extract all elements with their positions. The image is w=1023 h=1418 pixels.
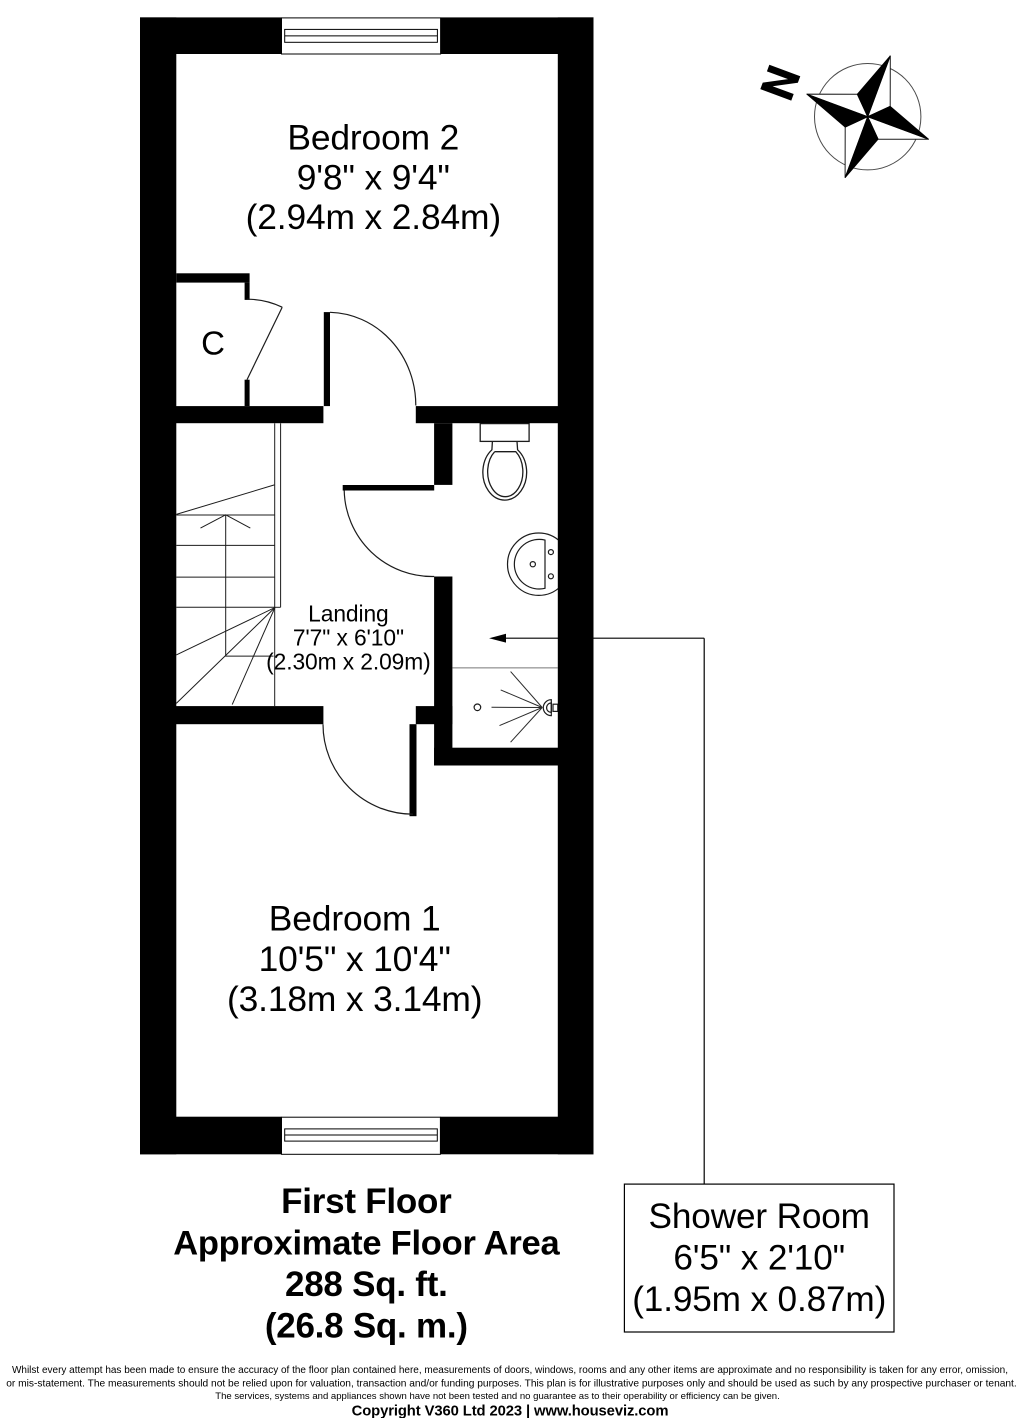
svg-text:C: C bbox=[201, 325, 225, 362]
svg-text:Bedroom 2: Bedroom 2 bbox=[287, 118, 459, 158]
svg-text:Copyright V360 Ltd 2023 | www.: Copyright V360 Ltd 2023 | www.houseviz.c… bbox=[352, 1403, 669, 1418]
svg-text:Whilst every attempt has been: Whilst every attempt has been made to en… bbox=[12, 1365, 1008, 1376]
svg-text:7'7" x 6'10": 7'7" x 6'10" bbox=[293, 625, 404, 651]
svg-text:(26.8 Sq. m.): (26.8 Sq. m.) bbox=[265, 1307, 468, 1346]
svg-text:Approximate Floor Area: Approximate Floor Area bbox=[173, 1225, 560, 1263]
svg-text:6'5" x 2'10": 6'5" x 2'10" bbox=[673, 1238, 845, 1277]
svg-text:9'8" x 9'4": 9'8" x 9'4" bbox=[297, 157, 450, 197]
svg-text:10'5" x 10'4": 10'5" x 10'4" bbox=[259, 939, 451, 979]
svg-text:Shower Room: Shower Room bbox=[649, 1197, 870, 1236]
svg-text:(2.30m x 2.09m): (2.30m x 2.09m) bbox=[266, 649, 430, 675]
svg-text:288 Sq. ft.: 288 Sq. ft. bbox=[285, 1265, 448, 1304]
svg-text:Landing: Landing bbox=[308, 600, 388, 626]
svg-text:The services, systems and appl: The services, systems and appliances sho… bbox=[215, 1391, 780, 1402]
svg-text:(3.18m x 3.14m): (3.18m x 3.14m) bbox=[227, 979, 482, 1019]
svg-text:First Floor: First Floor bbox=[281, 1182, 452, 1221]
svg-text:or mis-statement. The measurem: or mis-statement. The measurements shoul… bbox=[6, 1378, 1016, 1389]
svg-text:(1.95m x 0.87m): (1.95m x 0.87m) bbox=[632, 1280, 886, 1319]
svg-text:(2.94m x 2.84m): (2.94m x 2.84m) bbox=[246, 197, 501, 237]
svg-text:Bedroom 1: Bedroom 1 bbox=[269, 899, 441, 939]
